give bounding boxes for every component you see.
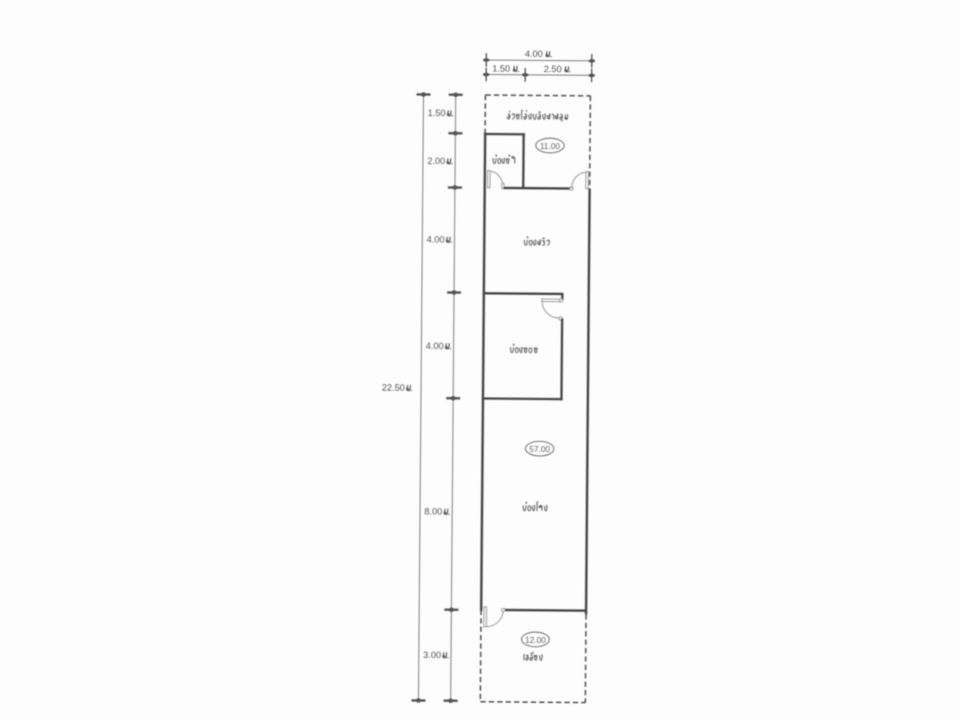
svg-text:2.00: 2.00 xyxy=(427,156,445,166)
svg-text:22.50: 22.50 xyxy=(382,383,405,393)
svg-text:4.00: 4.00 xyxy=(427,235,445,245)
svg-text:11.00: 11.00 xyxy=(540,141,561,151)
svg-text:4.00: 4.00 xyxy=(426,341,444,351)
svg-text:1.50: 1.50 xyxy=(428,108,446,118)
svg-text:57.00: 57.00 xyxy=(529,444,550,454)
svg-text:4.00: 4.00 xyxy=(525,49,543,59)
svg-text:3.00: 3.00 xyxy=(423,650,441,660)
svg-text:2.50: 2.50 xyxy=(544,64,562,74)
svg-text:8.00: 8.00 xyxy=(424,506,442,516)
svg-text:12.00: 12.00 xyxy=(525,635,546,645)
svg-text:1.50: 1.50 xyxy=(492,64,510,74)
